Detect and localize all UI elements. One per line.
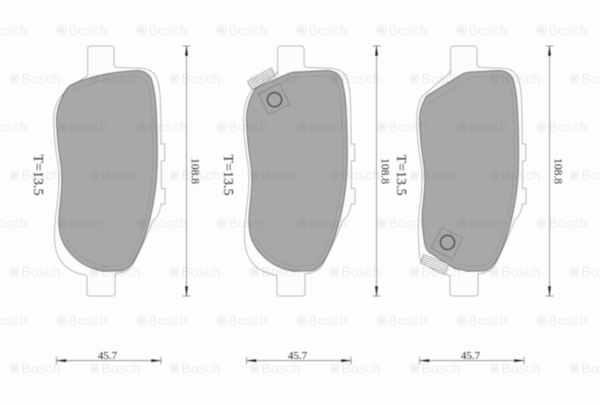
svg-text:T=13.5: T=13.5 <box>220 155 235 196</box>
svg-text:45.7: 45.7 <box>461 350 481 362</box>
svg-text:108.8: 108.8 <box>551 158 563 184</box>
svg-text:T=13.5: T=13.5 <box>393 155 408 196</box>
